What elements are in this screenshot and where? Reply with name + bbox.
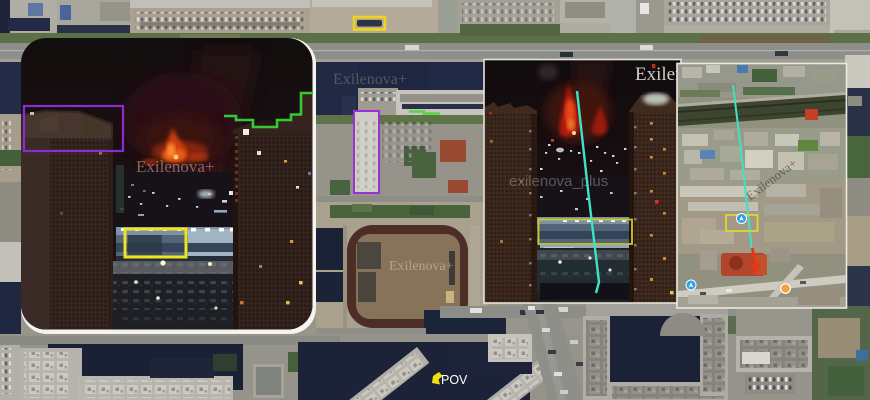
svg-text:Exilenova+: Exilenova+ xyxy=(389,259,454,274)
svg-text:Exilenova+: Exilenova+ xyxy=(136,157,215,176)
svg-text:exilenova_plus: exilenova_plus xyxy=(509,173,608,190)
svg-text:Exilenova+: Exilenova+ xyxy=(333,71,407,88)
svg-text:POV: POV xyxy=(441,373,468,387)
